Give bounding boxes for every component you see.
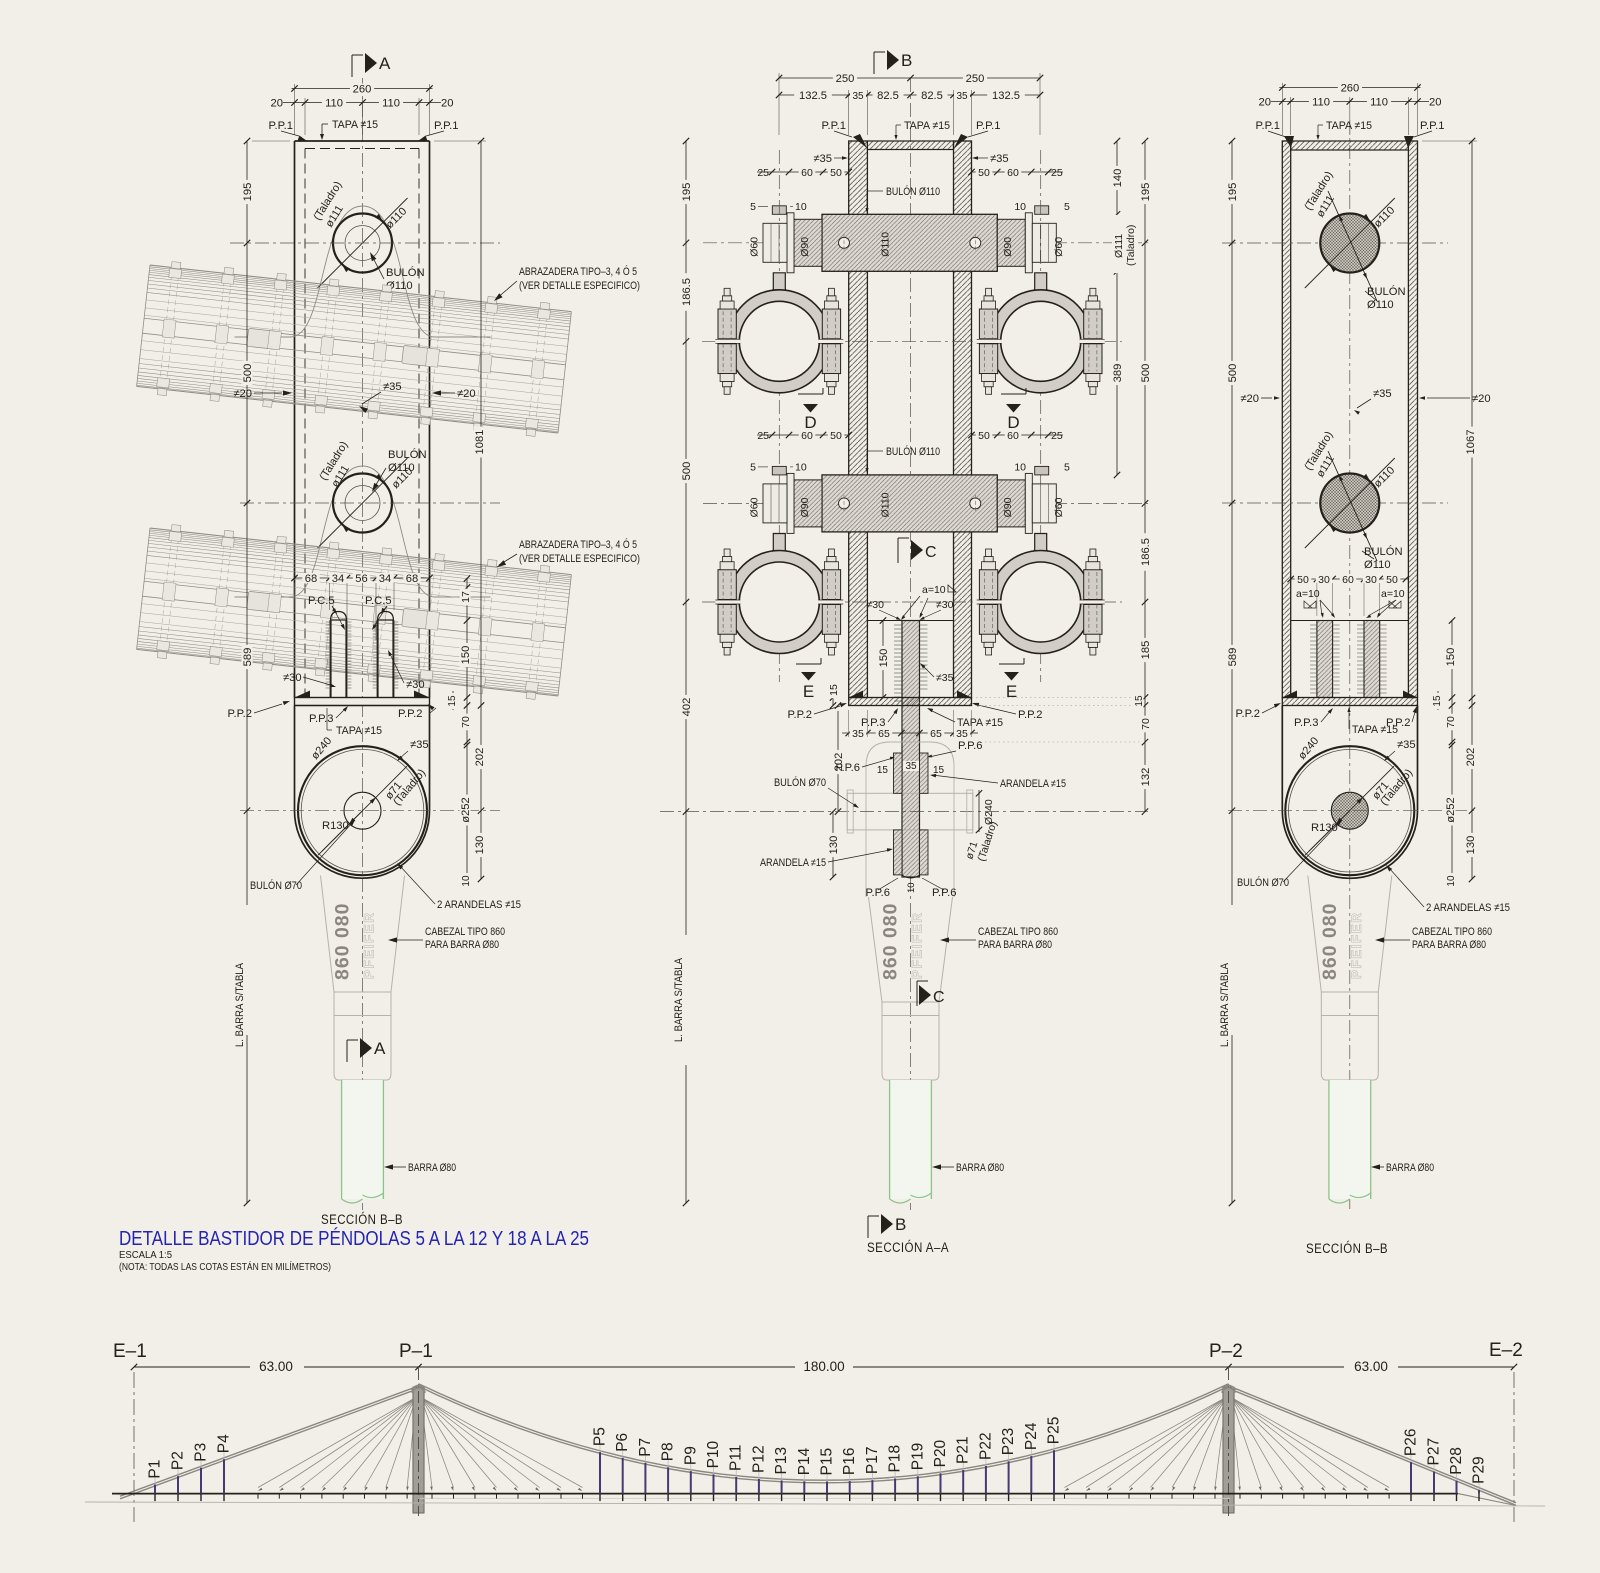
svg-text:35: 35 [852, 91, 864, 102]
svg-text:SECCIÓN A–A: SECCIÓN A–A [867, 1240, 949, 1255]
svg-text:10: 10 [906, 882, 917, 893]
svg-text:186.5: 186.5 [1140, 538, 1152, 566]
svg-text:10: 10 [1014, 461, 1026, 473]
svg-text:A: A [379, 54, 391, 73]
svg-text:34: 34 [379, 573, 391, 585]
svg-text:C: C [933, 989, 945, 1006]
svg-text:20: 20 [1429, 97, 1441, 109]
svg-text:Ø60: Ø60 [749, 497, 761, 517]
svg-text:50: 50 [1297, 574, 1309, 586]
svg-text:ABRAZADERA TIPO–3, 4 Ó 5: ABRAZADERA TIPO–3, 4 Ó 5 [519, 538, 637, 551]
svg-text:25: 25 [757, 167, 769, 179]
svg-text:195: 195 [1140, 183, 1152, 202]
svg-text:P–1: P–1 [399, 1341, 433, 1362]
svg-text:P.P.2: P.P.2 [228, 708, 252, 720]
svg-text:63.00: 63.00 [259, 1359, 293, 1374]
svg-text:P8: P8 [660, 1442, 677, 1461]
svg-text:15: 15 [828, 684, 840, 696]
svg-text:PFEIFER: PFEIFER [910, 911, 925, 979]
svg-text:BULÓN Ø110: BULÓN Ø110 [886, 445, 940, 458]
svg-text:CABEZAL TIPO 860: CABEZAL TIPO 860 [1412, 926, 1492, 938]
svg-text:P.P.6: P.P.6 [836, 762, 860, 774]
svg-text:500: 500 [242, 364, 254, 383]
svg-text:P24: P24 [1023, 1422, 1040, 1450]
svg-text:a=10: a=10 [1381, 588, 1405, 600]
svg-text:68: 68 [406, 573, 418, 585]
svg-text:Ø110: Ø110 [880, 492, 892, 517]
svg-text:ARANDELA ≠15: ARANDELA ≠15 [1000, 778, 1066, 790]
svg-text:P21: P21 [955, 1436, 972, 1464]
svg-text:TAPA ≠15: TAPA ≠15 [336, 725, 382, 737]
svg-text:≠20: ≠20 [233, 388, 252, 400]
svg-text:P10: P10 [705, 1440, 722, 1468]
svg-text:30: 30 [1365, 574, 1377, 586]
svg-text:P2: P2 [170, 1451, 187, 1470]
svg-text:B: B [901, 51, 912, 70]
svg-text:50: 50 [978, 430, 990, 442]
svg-text:110: 110 [1312, 96, 1330, 108]
svg-text:(VER DETALLE ESPECIFICO): (VER DETALLE ESPECIFICO) [519, 553, 640, 565]
svg-text:BARRA Ø80: BARRA Ø80 [408, 1162, 456, 1174]
svg-text:R130: R130 [1311, 822, 1338, 834]
svg-text:60: 60 [1342, 574, 1354, 586]
svg-text:BULÓN: BULÓN [1367, 285, 1406, 298]
svg-text:132.5: 132.5 [799, 90, 827, 102]
svg-text:860 080: 860 080 [332, 903, 354, 981]
svg-text:402: 402 [681, 698, 693, 717]
svg-text:BARRA Ø80: BARRA Ø80 [1386, 1162, 1434, 1174]
svg-text:≠20: ≠20 [457, 388, 476, 400]
svg-text:P18: P18 [887, 1445, 904, 1473]
svg-text:DETALLE BASTIDOR DE PÉNDOLA: DETALLE BASTIDOR DE PÉNDOLAS 5 A LA 12 Y… [119, 1227, 589, 1250]
svg-text:PFEIFER: PFEIFER [362, 911, 377, 979]
svg-text:P26: P26 [1403, 1429, 1420, 1457]
svg-text:P15: P15 [819, 1448, 836, 1476]
svg-text:10: 10 [1446, 875, 1457, 887]
svg-text:20: 20 [271, 98, 283, 110]
svg-text:P1: P1 [147, 1460, 164, 1479]
svg-text:P27: P27 [1426, 1438, 1443, 1466]
svg-text:≠30: ≠30 [406, 679, 425, 691]
svg-text:130: 130 [828, 836, 840, 855]
svg-text:(Taladro): (Taladro) [1125, 225, 1137, 266]
svg-text:R130: R130 [322, 820, 349, 832]
svg-text:15: 15 [1134, 695, 1145, 707]
svg-text:P17: P17 [864, 1447, 881, 1475]
svg-text:20: 20 [441, 98, 453, 110]
svg-text:BULÓN Ø70: BULÓN Ø70 [1237, 876, 1289, 889]
svg-text:P.P.1: P.P.1 [1256, 120, 1280, 132]
svg-text:65: 65 [930, 728, 942, 740]
svg-text:130: 130 [474, 836, 486, 855]
svg-text:≠35: ≠35 [813, 153, 832, 165]
svg-text:Ø110: Ø110 [880, 232, 892, 257]
svg-text:L. BARRA S/TABLA: L. BARRA S/TABLA [1219, 962, 1231, 1047]
svg-text:60: 60 [801, 167, 813, 179]
svg-text:P6: P6 [614, 1433, 631, 1452]
svg-text:P.P.6: P.P.6 [866, 887, 890, 899]
svg-text:P.P.1: P.P.1 [1420, 120, 1444, 132]
svg-text:P19: P19 [909, 1443, 926, 1471]
svg-text:BARRA Ø80: BARRA Ø80 [956, 1162, 1004, 1174]
svg-text:P25: P25 [1046, 1417, 1063, 1445]
svg-text:60: 60 [1007, 430, 1019, 442]
svg-text:500: 500 [1227, 364, 1239, 383]
svg-text:PFEIFER: PFEIFER [1349, 911, 1364, 979]
svg-text:15: 15 [877, 765, 889, 776]
svg-text:P14: P14 [796, 1447, 813, 1475]
svg-text:≠35: ≠35 [990, 153, 1009, 165]
svg-text:589: 589 [1227, 648, 1239, 667]
svg-text:≠20: ≠20 [1472, 393, 1491, 405]
svg-text:35: 35 [956, 91, 968, 102]
svg-text:P7: P7 [637, 1438, 654, 1457]
svg-text:5: 5 [750, 461, 756, 473]
svg-text:50: 50 [830, 167, 842, 179]
svg-text:ø252: ø252 [1445, 797, 1457, 823]
svg-text:Ø110: Ø110 [1364, 559, 1391, 571]
svg-text:10: 10 [461, 875, 472, 887]
svg-text:2 ARANDELAS ≠15: 2 ARANDELAS ≠15 [437, 899, 521, 911]
svg-text:E–1: E–1 [113, 1341, 147, 1362]
svg-text:30: 30 [1318, 574, 1330, 586]
svg-text:132.5: 132.5 [992, 90, 1020, 102]
svg-text:186.5: 186.5 [681, 278, 693, 306]
svg-text:195: 195 [242, 183, 254, 202]
svg-text:E: E [1006, 682, 1017, 701]
svg-text:P.P.2: P.P.2 [398, 708, 422, 720]
svg-text:≠35: ≠35 [1397, 739, 1416, 751]
svg-text:(NOTA: TODAS LAS COTAS EST: (NOTA: TODAS LAS COTAS ESTÁN EN MILÍMETR… [119, 1260, 331, 1273]
svg-text:50: 50 [978, 167, 990, 179]
svg-text:50: 50 [1386, 574, 1398, 586]
svg-text:≠30: ≠30 [283, 672, 302, 684]
svg-text:P5: P5 [592, 1427, 609, 1446]
svg-text:P.P.2: P.P.2 [788, 709, 812, 721]
svg-text:1067: 1067 [1465, 430, 1477, 455]
svg-text:P23: P23 [1000, 1428, 1017, 1456]
svg-text:TAPA ≠15: TAPA ≠15 [1326, 120, 1372, 132]
svg-text:589: 589 [242, 648, 254, 667]
svg-text:132: 132 [1140, 768, 1152, 787]
svg-text:BULÓN: BULÓN [388, 448, 427, 461]
svg-text:68: 68 [305, 573, 317, 585]
svg-text:35: 35 [905, 761, 917, 772]
svg-text:≠35: ≠35 [383, 381, 402, 393]
svg-text:202: 202 [474, 748, 486, 767]
svg-text:185: 185 [1140, 641, 1152, 660]
svg-text:35: 35 [852, 728, 864, 740]
svg-text:Ø90: Ø90 [799, 237, 811, 257]
svg-text:≠35: ≠35 [936, 672, 954, 684]
svg-text:50: 50 [830, 430, 842, 442]
svg-text:60: 60 [1007, 167, 1019, 179]
svg-text:A: A [374, 1039, 386, 1058]
svg-text:P12: P12 [750, 1445, 767, 1473]
svg-text:195: 195 [1227, 183, 1239, 202]
svg-text:56: 56 [355, 573, 367, 585]
svg-text:250: 250 [966, 73, 985, 85]
svg-text:BULÓN: BULÓN [386, 266, 425, 279]
svg-text:P.P.2: P.P.2 [1018, 709, 1042, 721]
svg-text:25: 25 [1051, 167, 1063, 179]
svg-text:2 ARANDELAS ≠15: 2 ARANDELAS ≠15 [1426, 902, 1510, 914]
svg-text:P.P.3: P.P.3 [309, 713, 333, 725]
svg-text:34: 34 [332, 573, 344, 585]
svg-text:195: 195 [681, 183, 693, 202]
svg-text:P.P.2: P.P.2 [1386, 717, 1410, 729]
svg-text:BULÓN Ø110: BULÓN Ø110 [886, 185, 940, 198]
svg-text:500: 500 [681, 462, 693, 481]
svg-text:P11: P11 [728, 1445, 745, 1471]
svg-text:250: 250 [836, 73, 855, 85]
svg-text:ARANDELA ≠15: ARANDELA ≠15 [760, 857, 826, 869]
svg-text:BULÓN Ø70: BULÓN Ø70 [774, 776, 826, 789]
svg-text:P16: P16 [841, 1448, 858, 1476]
svg-text:35: 35 [956, 728, 968, 740]
svg-text:260: 260 [353, 83, 372, 95]
svg-text:L. BARRA S/TABLA: L. BARRA S/TABLA [234, 962, 246, 1047]
svg-text:P22: P22 [977, 1432, 994, 1460]
svg-text:TAPA ≠15: TAPA ≠15 [332, 119, 378, 131]
svg-text:25: 25 [757, 430, 769, 442]
svg-text:Ø90: Ø90 [1002, 497, 1014, 517]
svg-text:130: 130 [1465, 836, 1477, 855]
svg-text:Ø60: Ø60 [749, 237, 761, 257]
svg-text:Ø60: Ø60 [1053, 237, 1065, 257]
svg-text:Ø90: Ø90 [799, 497, 811, 517]
svg-text:P.C.5: P.C.5 [365, 595, 392, 607]
svg-text:70: 70 [460, 716, 472, 728]
svg-text:≠30: ≠30 [936, 599, 954, 611]
svg-text:P20: P20 [932, 1439, 949, 1467]
svg-text:110: 110 [382, 97, 400, 109]
svg-text:202: 202 [1465, 748, 1477, 767]
svg-text:P13: P13 [773, 1447, 790, 1475]
svg-text:20: 20 [1259, 97, 1271, 109]
svg-text:1081: 1081 [474, 430, 486, 455]
svg-text:5: 5 [1064, 461, 1070, 473]
svg-text:P28: P28 [1448, 1447, 1465, 1475]
svg-text:SECCIÓN B–B: SECCIÓN B–B [321, 1212, 403, 1227]
svg-text:70: 70 [1445, 716, 1457, 728]
svg-text:CABEZAL TIPO 860: CABEZAL TIPO 860 [978, 926, 1058, 938]
svg-text:260: 260 [1341, 82, 1360, 94]
svg-text:≠30: ≠30 [867, 599, 885, 611]
svg-text:P–2: P–2 [1209, 1341, 1243, 1362]
svg-text:25: 25 [1051, 430, 1063, 442]
svg-text:P.P.1: P.P.1 [976, 120, 1000, 132]
svg-text:TAPA ≠15: TAPA ≠15 [904, 120, 950, 132]
svg-text:82.5: 82.5 [921, 90, 943, 102]
svg-text:PARA BARRA Ø80: PARA BARRA Ø80 [978, 939, 1052, 951]
svg-text:P.P.3: P.P.3 [1294, 717, 1318, 729]
svg-text:≠20: ≠20 [1240, 393, 1259, 405]
svg-text:P.P.2: P.P.2 [1236, 708, 1260, 720]
svg-text:5: 5 [750, 201, 756, 213]
svg-text:P.P.1: P.P.1 [822, 120, 846, 132]
svg-text:BULÓN Ø70: BULÓN Ø70 [250, 879, 302, 892]
svg-text:Ø60: Ø60 [1053, 497, 1065, 517]
svg-text:65: 65 [878, 728, 890, 740]
svg-text:L. BARRA S/TABLA: L. BARRA S/TABLA [673, 957, 685, 1042]
svg-text:17: 17 [460, 591, 472, 603]
svg-text:150: 150 [878, 649, 890, 668]
svg-text:10: 10 [795, 461, 807, 473]
svg-text:P.P.6: P.P.6 [958, 740, 982, 752]
svg-text:180.00: 180.00 [803, 1359, 844, 1374]
svg-text:60: 60 [801, 430, 813, 442]
svg-text:ABRAZADERA TIPO–3, 4 Ó 5: ABRAZADERA TIPO–3, 4 Ó 5 [519, 265, 637, 278]
svg-text:150: 150 [1445, 648, 1457, 667]
svg-text:P.C.5: P.C.5 [308, 595, 335, 607]
svg-text:ESCALA 1:5: ESCALA 1:5 [119, 1250, 172, 1261]
svg-text:(VER DETALLE ESPECIFICO): (VER DETALLE ESPECIFICO) [519, 280, 640, 292]
svg-text:PARA BARRA Ø80: PARA BARRA Ø80 [425, 939, 499, 951]
svg-text:P9: P9 [682, 1446, 699, 1465]
svg-text:5: 5 [1064, 201, 1070, 213]
svg-text:10: 10 [795, 201, 807, 213]
svg-text:140: 140 [1112, 169, 1124, 188]
svg-text:860 080: 860 080 [880, 903, 902, 981]
svg-text:B: B [895, 1215, 906, 1234]
svg-text:P.P.1: P.P.1 [434, 120, 458, 132]
svg-text:389: 389 [1112, 364, 1124, 383]
svg-text:P.P.1: P.P.1 [269, 120, 293, 132]
svg-text:82.5: 82.5 [877, 90, 899, 102]
svg-text:SECCIÓN B–B: SECCIÓN B–B [1306, 1241, 1388, 1256]
svg-text:a=10: a=10 [922, 584, 946, 596]
svg-text:P3: P3 [193, 1443, 210, 1462]
svg-text:C: C [925, 544, 937, 561]
svg-text:E–2: E–2 [1489, 1340, 1523, 1361]
svg-text:63.00: 63.00 [1354, 1359, 1388, 1374]
svg-text:15: 15 [447, 695, 458, 707]
svg-text:860 080: 860 080 [1319, 903, 1341, 981]
svg-text:Ø111: Ø111 [1113, 234, 1125, 258]
svg-text:P29: P29 [1471, 1456, 1488, 1484]
svg-text:110: 110 [1370, 96, 1388, 108]
svg-text:150: 150 [460, 646, 472, 665]
svg-text:E: E [803, 682, 814, 701]
svg-text:70: 70 [1140, 718, 1152, 730]
svg-text:PARA BARRA Ø80: PARA BARRA Ø80 [1412, 939, 1486, 951]
svg-text:10: 10 [1014, 201, 1026, 213]
svg-text:P4: P4 [216, 1434, 233, 1453]
svg-text:110: 110 [325, 97, 343, 109]
svg-text:500: 500 [1140, 364, 1152, 383]
svg-text:Ø90: Ø90 [1002, 237, 1014, 257]
svg-text:a=10: a=10 [1296, 588, 1320, 600]
svg-text:CABEZAL TIPO 860: CABEZAL TIPO 860 [425, 926, 505, 938]
svg-text:≠35: ≠35 [1373, 388, 1392, 400]
svg-text:ø252: ø252 [460, 797, 472, 823]
svg-text:15: 15 [1432, 695, 1443, 707]
svg-text:≠35: ≠35 [410, 739, 429, 751]
svg-text:Ø110: Ø110 [1367, 299, 1394, 311]
